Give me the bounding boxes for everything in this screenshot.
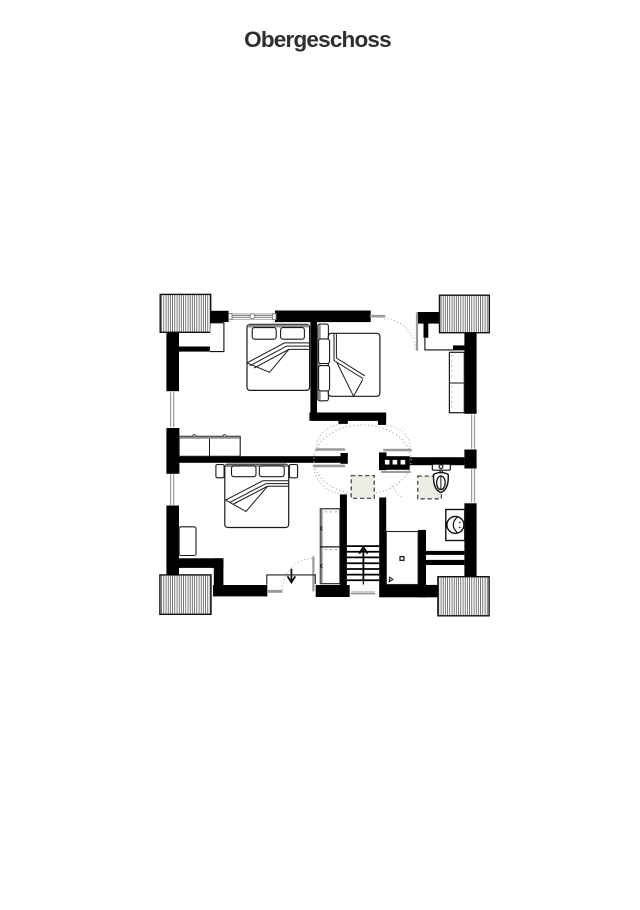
- svg-text:Obergeschoss: Obergeschoss: [244, 27, 391, 52]
